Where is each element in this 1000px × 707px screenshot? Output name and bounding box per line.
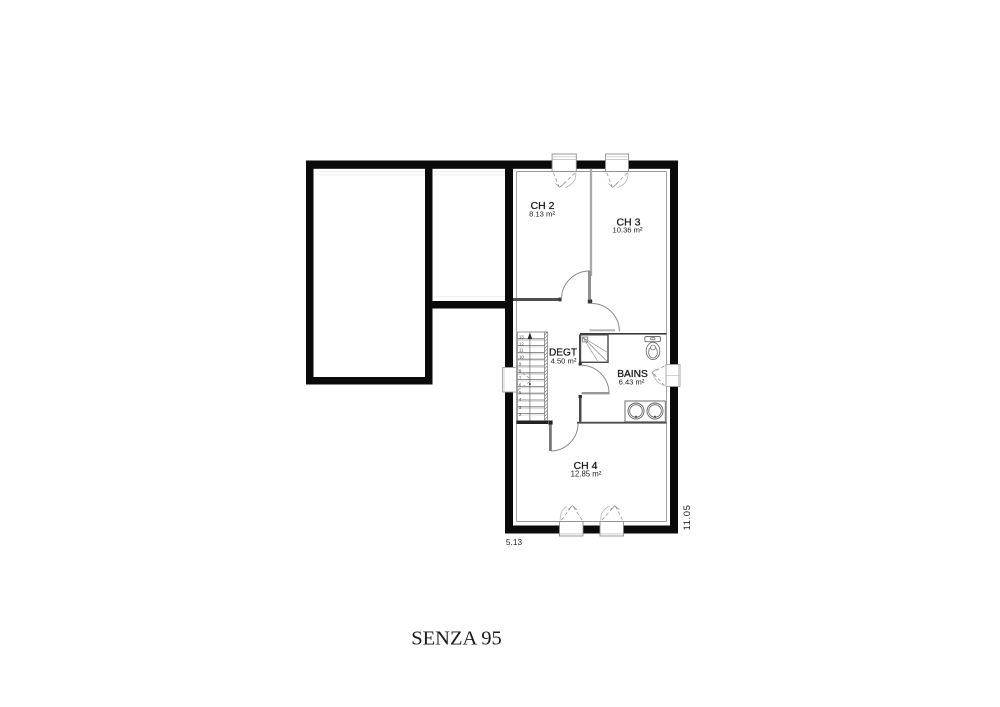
svg-text:11.05: 11.05 [682,504,693,530]
svg-text:10.36 m²: 10.36 m² [613,226,643,235]
svg-text:10: 10 [519,354,524,359]
svg-text:12.85 m²: 12.85 m² [571,470,602,479]
svg-text:5.13: 5.13 [506,537,523,547]
svg-text:8.13 m²: 8.13 m² [529,210,555,219]
svg-text:11: 11 [519,347,524,352]
svg-text:4.50 m²: 4.50 m² [551,356,577,365]
svg-text:12: 12 [519,341,524,346]
svg-text:13: 13 [519,334,524,339]
svg-text:SENZA 95: SENZA 95 [411,628,502,650]
svg-text:6.43 m²: 6.43 m² [619,378,645,387]
